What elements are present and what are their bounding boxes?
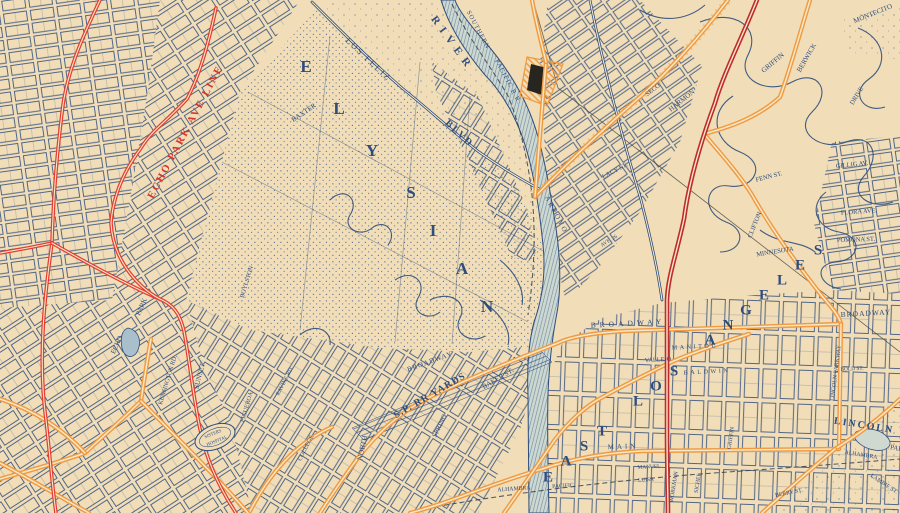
map-label-elysian-y: Y: [366, 141, 378, 160]
map-label-manuel: MANUEL: [637, 464, 660, 471]
map-label-ela-l1: L: [633, 393, 643, 409]
map-label-ela-l2: L: [777, 272, 787, 288]
map-label-elysian-s: S: [406, 183, 415, 202]
map-label-elysian-i: I: [430, 221, 437, 240]
map-label-elysian-n: N: [481, 297, 494, 316]
map-label-pomona: POMONA ST.: [837, 236, 876, 244]
map-label-ela-e3: E: [795, 257, 805, 273]
map-label-vallejo: VALLEJO: [645, 356, 672, 364]
map-canvas: ECHO PARK AVE LINERIVERLOS FELIZBLVDSOUT…: [0, 0, 900, 513]
map-label-elysian-l: L: [333, 99, 344, 118]
map-label-ela-o1: O: [650, 378, 662, 394]
map-label-elysian-e: E: [300, 57, 311, 76]
map-label-ela-e2: E: [759, 287, 769, 303]
map-label-luisa: LUISA: [638, 477, 654, 484]
map-label-elysian-a: A: [456, 259, 469, 278]
map-label-ela-g1: G: [740, 302, 752, 318]
map-label-ela-a1: A: [561, 453, 572, 469]
map-label-ela-s3: S: [814, 242, 822, 258]
map-label-bold-st: BOLD ST.: [840, 366, 864, 373]
map-label-ela-s1: S: [580, 438, 588, 454]
map-label-ela-n1: N: [723, 317, 734, 333]
map-label-ela-e1: E: [543, 469, 553, 485]
historic-street-map: ECHO PARK AVE LINERIVERLOS FELIZBLVDSOUT…: [0, 0, 900, 513]
map-label-ela-s2: S: [670, 363, 678, 379]
map-label-ela-t1: T: [597, 423, 607, 439]
map-label-main: MAIN: [608, 442, 639, 451]
